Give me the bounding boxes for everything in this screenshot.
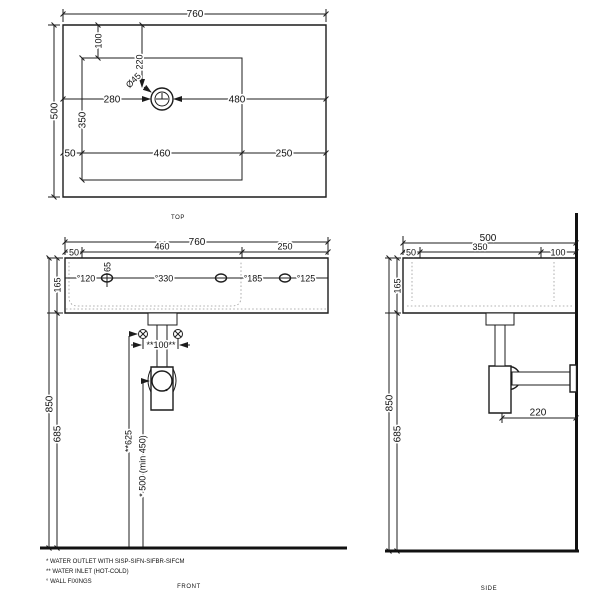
front-view: 760 50 460 250 165 °120 °330 °185 °125 6… (40, 237, 347, 590)
technical-drawing: 760 500 100 220 Ø45 280 480 350 50 460 2… (0, 0, 602, 600)
dim-front-overall-width: 760 (189, 237, 206, 248)
side-view-label: SIDE (481, 586, 497, 592)
top-view-label: TOP (171, 215, 185, 221)
dim-top-left-gap: 50 (64, 149, 76, 160)
bottle-trap-front (148, 313, 177, 410)
dim-side-height: 165 (393, 278, 403, 293)
dim-fixing-gap: °185 (244, 274, 263, 284)
dim-side-bowl-depth: 350 (472, 242, 487, 252)
dim-top-right-gap: 250 (276, 149, 293, 160)
dim-inlet-height: **625 (124, 430, 134, 452)
faucet-hole-icon (151, 88, 173, 110)
dim-side-total-height: 850 (385, 394, 396, 411)
dim-front-underside-height: 685 (53, 425, 64, 442)
dim-inlet-spacing: **100** (146, 340, 176, 350)
footnote-water-outlet: * WATER OUTLET WITH SISP-SIFN-SIFBR-SIFC… (46, 559, 185, 565)
footnote-wall-fixings: ° WALL FIXINGS (46, 579, 92, 585)
bottle-trap-side (486, 313, 577, 413)
dim-top-bowl-offset: 100 (94, 33, 104, 48)
footnote-water-inlet: ** WATER INLET (HOT-COLD) (46, 569, 129, 575)
dim-front-bowl-width: 460 (154, 242, 169, 252)
dim-top-hole-from-top: 220 (135, 54, 145, 69)
dim-side-front-gap: 50 (406, 248, 416, 258)
dim-side-underside-height: 685 (393, 425, 404, 442)
dim-fixing-left: °120 (77, 274, 96, 284)
dim-top-bowl-width: 460 (154, 149, 171, 160)
dim-side-back-gap: 100 (550, 248, 565, 258)
side-view: 500 50 350 100 165 220 850 (385, 213, 580, 592)
front-view-label: FRONT (177, 584, 201, 590)
dim-top-overall-depth: 500 (50, 102, 61, 119)
dim-front-total-height: 850 (45, 395, 56, 412)
side-basin-outline (403, 258, 576, 313)
dim-trap-to-wall: 220 (530, 408, 547, 419)
dim-fixing-span: °330 (155, 274, 174, 284)
water-inlet-right-icon (174, 330, 183, 339)
dim-fixing-right: °125 (297, 274, 316, 284)
washbasin-technical-drawing-page: 760 500 100 220 Ø45 280 480 350 50 460 2… (0, 0, 602, 600)
dim-top-bowl-depth: 350 (78, 111, 89, 128)
front-hidden-bowl (69, 262, 241, 306)
dim-top-hole-to-right: 480 (229, 95, 246, 106)
dim-front-right-gap: 250 (277, 242, 292, 252)
dim-fixing-offset: 65 (103, 262, 113, 272)
top-view: 760 500 100 220 Ø45 280 480 350 50 460 2… (48, 9, 329, 221)
dim-outlet-height: * 500 (min 450) (138, 435, 148, 497)
dim-top-overall-width: 760 (187, 9, 204, 20)
dim-top-hole-from-left: 280 (104, 95, 121, 106)
dim-front-height: 165 (53, 277, 63, 292)
dim-faucet-hole-diameter: Ø45 (124, 71, 143, 90)
footnotes: * WATER OUTLET WITH SISP-SIFN-SIFBR-SIFC… (46, 559, 185, 585)
top-bowl-outline (82, 58, 242, 180)
top-basin-outline (63, 25, 326, 197)
dim-front-left-gap: 50 (69, 248, 79, 258)
water-inlet-left-icon (139, 330, 148, 339)
